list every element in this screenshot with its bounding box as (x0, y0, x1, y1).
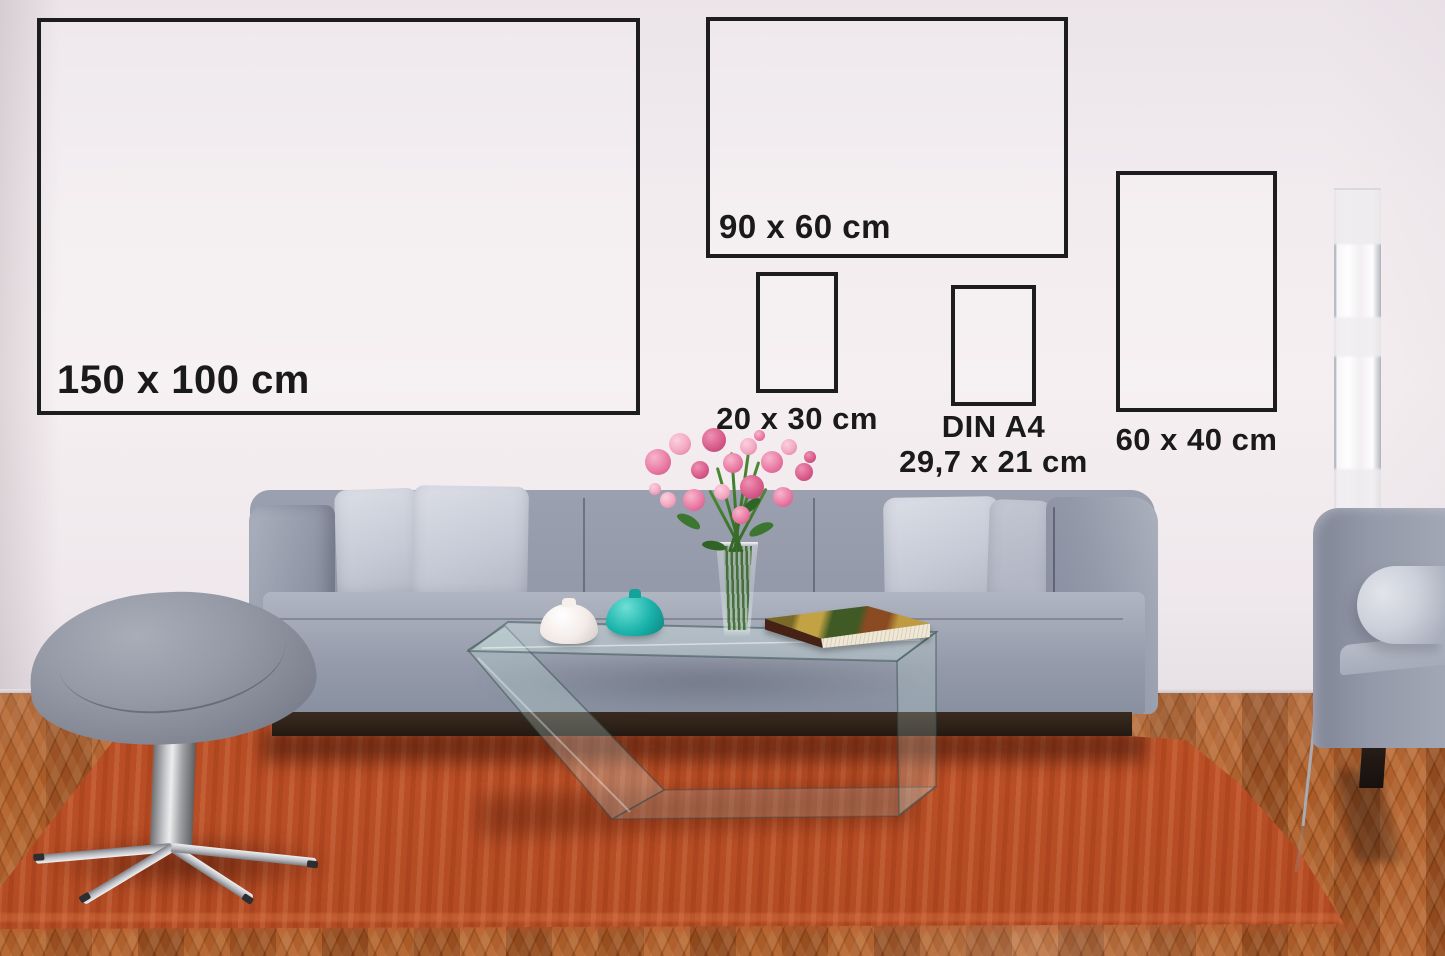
table-shade-on-sofa (470, 650, 940, 712)
size-label-150x100: 150 x 100 cm (57, 358, 310, 403)
table-shadow (477, 780, 914, 837)
size-label-60x40: 60 x 40 cm (1116, 422, 1278, 458)
flower-bud (754, 430, 765, 441)
frame-90x60: 90 x 60 cm (706, 17, 1068, 258)
frame-20x30: 20 x 30 cm (756, 272, 838, 393)
size-label-din-a4-line2: 29,7 x 21 cm (899, 445, 1088, 480)
sofa-pillow (334, 488, 422, 609)
flower (740, 438, 757, 455)
frame-150x100: 150 x 100 cm (37, 18, 640, 415)
flower-bud (804, 451, 816, 463)
flower (660, 492, 676, 508)
flower (683, 489, 705, 511)
sofa-base (272, 712, 1132, 736)
flower (714, 484, 730, 500)
flower (781, 439, 797, 455)
flower (773, 487, 793, 507)
flower (740, 475, 764, 499)
frame-din-a4: DIN A4 29,7 x 21 cm (951, 285, 1036, 406)
floor-lamp (1334, 188, 1381, 520)
ottoman-column (150, 738, 196, 848)
flower-stems-in-vase (723, 546, 752, 630)
flower-bud (649, 483, 661, 495)
flower (691, 461, 709, 479)
frame-60x40: 60 x 40 cm (1116, 171, 1277, 412)
flower (645, 449, 671, 475)
flower (702, 428, 726, 452)
side-sofa-bolster (1357, 566, 1445, 644)
flower (795, 463, 813, 481)
rug-binding-edge (0, 913, 1350, 922)
sofa-pillow (411, 485, 529, 609)
living-room-size-guide: 150 x 100 cm 90 x 60 cm 20 x 30 cm DIN A… (0, 0, 1445, 956)
flower (732, 506, 750, 524)
size-label-din-a4-line1: DIN A4 (899, 410, 1088, 445)
book (765, 606, 930, 648)
size-label-20x30: 20 x 30 cm (716, 401, 878, 437)
size-label-90x60: 90 x 60 cm (719, 208, 891, 246)
flower (669, 433, 691, 455)
size-label-din-a4: DIN A4 29,7 x 21 cm (899, 410, 1088, 479)
flower (761, 451, 783, 473)
flower (723, 453, 743, 473)
